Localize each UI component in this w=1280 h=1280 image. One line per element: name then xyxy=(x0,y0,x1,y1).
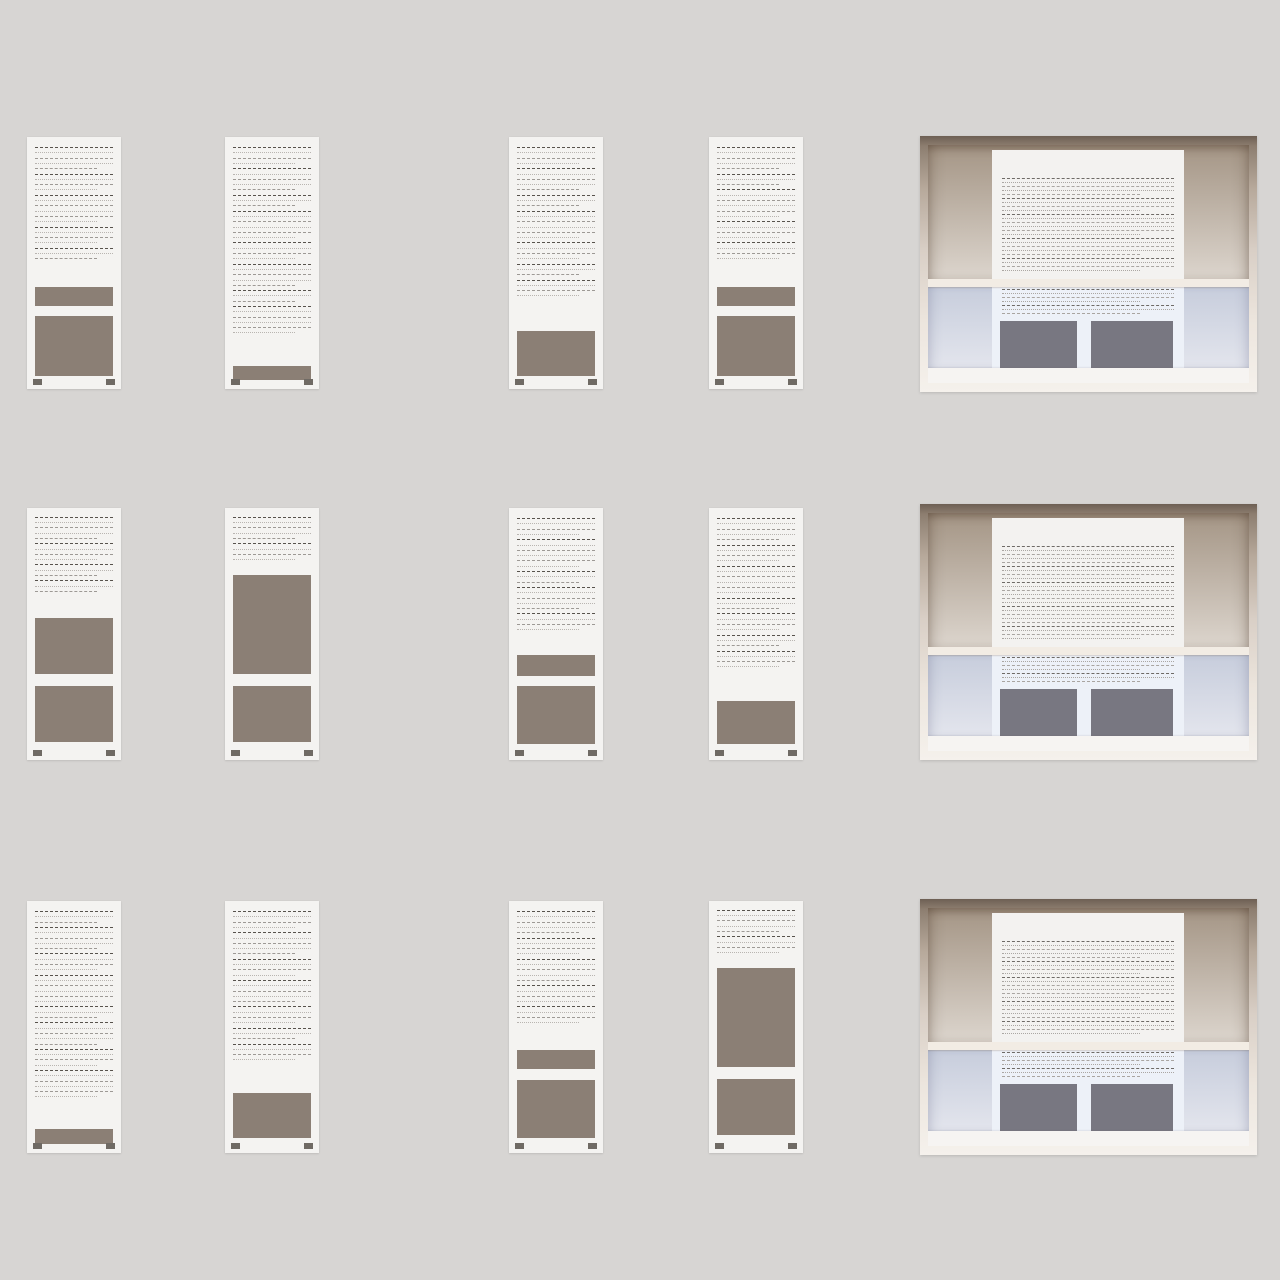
paragraph xyxy=(233,932,311,954)
text-line xyxy=(517,587,595,588)
text-line xyxy=(233,959,311,960)
text-line xyxy=(517,916,595,917)
text-line xyxy=(1002,574,1174,575)
text-line xyxy=(233,322,311,323)
text-line xyxy=(517,598,595,599)
paragraph xyxy=(1002,1068,1174,1077)
paragraph xyxy=(233,980,311,1002)
text-line xyxy=(1002,989,1174,990)
text-line xyxy=(517,158,595,159)
text-line xyxy=(35,538,97,539)
paragraph xyxy=(35,174,113,191)
text-line xyxy=(35,996,113,997)
text-line xyxy=(517,232,595,233)
paragraph xyxy=(35,953,113,970)
page-thumbnail[interactable] xyxy=(27,508,121,760)
text-line xyxy=(233,158,311,159)
text-line xyxy=(517,258,579,259)
text-line xyxy=(717,947,795,948)
image-placeholder xyxy=(35,618,113,675)
text-line xyxy=(517,1017,595,1018)
text-line xyxy=(517,274,579,275)
text-line xyxy=(517,1012,595,1013)
text-line xyxy=(1002,681,1140,682)
image-placeholder xyxy=(233,686,311,743)
text-line xyxy=(35,1012,113,1013)
paragraph xyxy=(233,211,311,238)
text-line xyxy=(1002,226,1174,227)
text-line xyxy=(717,211,795,212)
text-line xyxy=(717,205,795,206)
text-line xyxy=(1002,602,1140,603)
paragraph xyxy=(517,938,595,955)
paragraph xyxy=(233,517,311,539)
footer-band xyxy=(928,736,1249,751)
footer-mark xyxy=(588,750,596,756)
text-line xyxy=(35,237,113,238)
text-line xyxy=(35,168,97,169)
text-line xyxy=(517,163,579,164)
text-line xyxy=(35,916,113,917)
text-line xyxy=(233,522,311,523)
footer-mark xyxy=(231,750,239,756)
text-line xyxy=(35,227,113,228)
text-line xyxy=(1002,546,1174,547)
text-line xyxy=(35,1075,113,1076)
text-line xyxy=(35,1070,113,1071)
text-line xyxy=(517,1001,579,1002)
text-column xyxy=(717,518,795,698)
text-line xyxy=(1002,626,1174,627)
text-line xyxy=(1002,969,1174,970)
paragraph xyxy=(35,147,113,169)
text-line xyxy=(233,179,311,180)
text-line xyxy=(717,608,779,609)
text-line xyxy=(717,534,795,535)
text-column xyxy=(517,911,595,1046)
text-line xyxy=(717,576,795,577)
text-column xyxy=(517,147,595,326)
paragraph xyxy=(35,911,113,923)
text-line xyxy=(717,529,795,530)
page-thumbnail[interactable] xyxy=(709,901,803,1153)
page-thumbnail[interactable] xyxy=(509,137,603,389)
footer-mark xyxy=(515,1143,523,1149)
paragraph xyxy=(517,264,595,276)
text-line xyxy=(717,195,795,196)
text-line xyxy=(517,975,595,976)
text-line xyxy=(233,980,311,981)
text-line xyxy=(233,549,311,550)
paragraph xyxy=(517,911,595,933)
text-line xyxy=(35,1028,113,1029)
text-line xyxy=(35,559,97,560)
text-column xyxy=(517,518,595,652)
paragraph xyxy=(1002,626,1174,639)
text-line xyxy=(1002,1005,1174,1006)
text-line xyxy=(1002,222,1174,223)
spread-thumbnail[interactable] xyxy=(920,136,1257,392)
text-line xyxy=(35,932,113,933)
text-line xyxy=(717,189,795,190)
divider-band xyxy=(928,1042,1249,1049)
text-line xyxy=(1002,1072,1174,1073)
text-line xyxy=(717,619,795,620)
text-line xyxy=(1002,194,1140,195)
text-line xyxy=(717,518,795,519)
text-line xyxy=(233,1044,311,1045)
text-line xyxy=(517,608,579,609)
paragraph xyxy=(35,927,113,949)
paragraph xyxy=(717,221,795,238)
text-line xyxy=(1002,190,1174,191)
text-line xyxy=(233,258,295,259)
image-placeholder xyxy=(1091,321,1173,368)
text-line xyxy=(517,943,595,944)
text-line xyxy=(717,910,795,911)
text-line xyxy=(35,1091,113,1092)
text-line xyxy=(233,517,311,518)
text-line xyxy=(35,549,113,550)
text-line xyxy=(1002,258,1174,259)
image-placeholder xyxy=(517,686,595,744)
text-line xyxy=(1002,218,1174,219)
text-line xyxy=(233,280,311,281)
text-line xyxy=(517,242,595,243)
text-line xyxy=(233,996,311,997)
text-line xyxy=(233,538,295,539)
text-line xyxy=(1002,1029,1174,1030)
text-line xyxy=(517,991,595,992)
text-line xyxy=(1002,614,1174,615)
image-placeholder xyxy=(233,366,311,380)
text-line xyxy=(1002,973,1140,974)
text-line xyxy=(517,938,595,939)
footer-mark xyxy=(715,379,723,385)
text-line xyxy=(1002,661,1174,662)
text-line xyxy=(717,237,779,238)
text-line xyxy=(35,1049,113,1050)
text-line xyxy=(517,555,595,556)
text-line xyxy=(517,205,579,206)
text-line xyxy=(233,317,311,318)
spread-thumbnail[interactable] xyxy=(920,504,1257,760)
image-placeholder xyxy=(517,655,595,675)
text-line xyxy=(717,582,795,583)
text-line xyxy=(517,285,595,286)
text-line xyxy=(35,948,97,949)
paragraph xyxy=(717,242,795,259)
text-line xyxy=(717,174,795,175)
text-line xyxy=(517,566,579,567)
paragraph xyxy=(717,651,795,668)
paragraph xyxy=(233,264,311,286)
text-line xyxy=(717,147,795,148)
text-line xyxy=(717,523,795,524)
footer-mark xyxy=(715,1143,723,1149)
page-thumbnail[interactable] xyxy=(27,137,121,389)
text-line xyxy=(35,1033,113,1034)
paragraph xyxy=(233,911,311,928)
footer-mark xyxy=(33,750,41,756)
image-placeholder xyxy=(717,316,795,376)
text-line xyxy=(1002,618,1174,619)
text-line xyxy=(717,258,779,259)
image-placeholder xyxy=(233,575,311,675)
text-line xyxy=(517,253,595,254)
footer-mark xyxy=(231,1143,239,1149)
paragraph xyxy=(1002,657,1174,670)
paragraph xyxy=(1002,1001,1174,1018)
text-line xyxy=(35,211,113,212)
text-line xyxy=(1002,610,1174,611)
footer-mark xyxy=(106,750,114,756)
page-thumbnail[interactable] xyxy=(709,508,803,760)
text-column xyxy=(717,147,795,282)
text-line xyxy=(517,996,595,997)
text-line xyxy=(517,624,595,625)
text-line xyxy=(517,560,595,561)
paragraph xyxy=(1002,566,1174,579)
paragraph xyxy=(517,587,595,609)
text-line xyxy=(517,221,595,222)
text-line xyxy=(717,232,795,233)
text-line xyxy=(35,564,113,565)
text-line xyxy=(517,592,595,593)
text-line xyxy=(233,559,295,560)
text-line xyxy=(233,1054,311,1055)
page-thumbnail[interactable] xyxy=(509,508,603,760)
paragraph xyxy=(1002,961,1174,974)
text-line xyxy=(233,543,311,544)
page-thumbnail[interactable] xyxy=(225,901,319,1153)
paragraph xyxy=(717,147,795,169)
text-line xyxy=(1002,578,1140,579)
paragraph xyxy=(233,959,311,976)
text-line xyxy=(717,555,795,556)
paragraph xyxy=(35,543,113,560)
text-line xyxy=(717,587,795,588)
text-line xyxy=(517,927,595,928)
text-line xyxy=(717,221,795,222)
text-line xyxy=(517,582,579,583)
text-line xyxy=(517,545,595,546)
text-line xyxy=(233,248,311,249)
text-line xyxy=(35,174,113,175)
page-thumbnail[interactable] xyxy=(509,901,603,1153)
paragraph xyxy=(35,1049,113,1066)
paragraph xyxy=(517,168,595,190)
text-line xyxy=(717,571,795,572)
text-line xyxy=(1002,997,1140,998)
paragraph xyxy=(517,985,595,1002)
divider-band xyxy=(928,279,1249,286)
text-line xyxy=(517,290,595,291)
text-line xyxy=(1002,594,1174,595)
page-thumbnail[interactable] xyxy=(709,137,803,389)
paragraph xyxy=(1002,178,1174,195)
text-line xyxy=(517,948,595,949)
text-line xyxy=(35,975,113,976)
text-line xyxy=(35,953,113,954)
text-line xyxy=(35,1086,113,1087)
footer-mark xyxy=(515,379,523,385)
image-placeholder xyxy=(1000,321,1077,368)
text-line xyxy=(233,1022,295,1023)
paragraph xyxy=(717,545,795,562)
text-line xyxy=(517,576,595,577)
text-line xyxy=(1002,289,1174,290)
paragraph xyxy=(233,242,311,259)
text-line xyxy=(1002,1025,1174,1026)
text-line xyxy=(717,539,779,540)
text-line xyxy=(35,200,113,201)
text-line xyxy=(35,580,113,581)
text-line xyxy=(35,964,113,965)
text-line xyxy=(1002,957,1140,958)
text-line xyxy=(717,550,795,551)
text-line xyxy=(1002,586,1174,587)
spread-thumbnail[interactable] xyxy=(920,899,1257,1155)
text-line xyxy=(717,915,795,916)
text-line xyxy=(1002,673,1174,674)
paragraph xyxy=(717,910,795,932)
text-line xyxy=(35,527,113,528)
text-line xyxy=(35,1006,113,1007)
text-line xyxy=(35,911,113,912)
text-line xyxy=(233,953,295,954)
text-line xyxy=(517,523,595,524)
text-line xyxy=(233,168,311,169)
footer-mark xyxy=(715,750,723,756)
text-line xyxy=(233,205,295,206)
page-thumbnail[interactable] xyxy=(225,137,319,389)
paragraph xyxy=(517,280,595,297)
text-line xyxy=(1002,198,1174,199)
text-line xyxy=(35,1096,97,1097)
text-line xyxy=(35,253,113,254)
text-line xyxy=(233,533,311,534)
image-placeholder xyxy=(717,968,795,1068)
text-line xyxy=(717,179,795,180)
text-line xyxy=(517,539,595,540)
text-line xyxy=(233,227,311,228)
text-line xyxy=(1002,182,1174,183)
text-column xyxy=(35,517,113,613)
paragraph xyxy=(1002,289,1174,302)
text-line xyxy=(1002,234,1140,235)
text-line xyxy=(717,253,795,254)
text-line xyxy=(517,922,595,923)
text-line xyxy=(1002,210,1140,211)
image-placeholder xyxy=(517,1050,595,1069)
text-line xyxy=(1002,558,1174,559)
text-line xyxy=(517,179,595,180)
text-line xyxy=(717,158,795,159)
text-line xyxy=(717,635,795,636)
text-line xyxy=(1002,669,1140,670)
text-line xyxy=(1002,1033,1140,1034)
paragraph xyxy=(717,566,795,593)
paragraph xyxy=(35,227,113,244)
text-line xyxy=(233,1001,295,1002)
text-line xyxy=(233,527,311,528)
text-line xyxy=(233,327,311,328)
text-line xyxy=(233,554,311,555)
text-line xyxy=(233,916,311,917)
text-line xyxy=(517,959,595,960)
text-line xyxy=(1002,634,1174,635)
panel-interior xyxy=(928,145,1249,383)
text-line xyxy=(517,985,595,986)
paragraph xyxy=(1002,673,1174,682)
text-line xyxy=(1002,246,1174,247)
text-line xyxy=(233,1006,311,1007)
text-line xyxy=(517,216,595,217)
text-line xyxy=(35,189,97,190)
paragraph xyxy=(233,147,311,164)
text-line xyxy=(35,152,113,153)
text-line xyxy=(35,216,113,217)
paragraph xyxy=(717,613,795,630)
text-line xyxy=(233,932,311,933)
text-line xyxy=(1002,941,1174,942)
text-line xyxy=(233,211,311,212)
text-line xyxy=(1002,309,1174,310)
text-column xyxy=(233,147,311,364)
paragraph xyxy=(717,598,795,610)
text-line xyxy=(717,566,795,567)
text-line xyxy=(35,195,113,196)
text-line xyxy=(1002,254,1140,255)
paragraph xyxy=(233,168,311,190)
page-thumbnail[interactable] xyxy=(225,508,319,760)
text-line xyxy=(35,1017,97,1018)
text-line xyxy=(717,920,795,921)
text-line xyxy=(35,533,113,534)
text-line xyxy=(717,592,779,593)
text-line xyxy=(233,975,295,976)
center-page xyxy=(992,518,1184,647)
text-line xyxy=(517,189,579,190)
page-thumbnail[interactable] xyxy=(27,901,121,1153)
text-line xyxy=(233,927,295,928)
text-line xyxy=(233,311,311,312)
text-line xyxy=(233,1028,311,1029)
text-line xyxy=(35,158,113,159)
text-line xyxy=(1002,953,1174,954)
text-line xyxy=(35,205,113,206)
paragraph xyxy=(517,1006,595,1023)
text-line xyxy=(1002,949,1174,950)
text-line xyxy=(233,938,311,939)
paragraph xyxy=(517,959,595,981)
text-line xyxy=(35,258,97,259)
text-line xyxy=(35,1001,97,1002)
text-line xyxy=(1002,985,1174,986)
text-line xyxy=(233,911,311,912)
text-line xyxy=(233,943,311,944)
text-line xyxy=(233,232,311,233)
text-line xyxy=(517,237,579,238)
paragraph xyxy=(717,936,795,953)
image-placeholder xyxy=(35,1129,113,1144)
text-line xyxy=(517,980,579,981)
text-line xyxy=(233,195,311,196)
paragraph xyxy=(1002,606,1174,623)
text-line xyxy=(517,964,595,965)
text-line xyxy=(35,591,97,592)
